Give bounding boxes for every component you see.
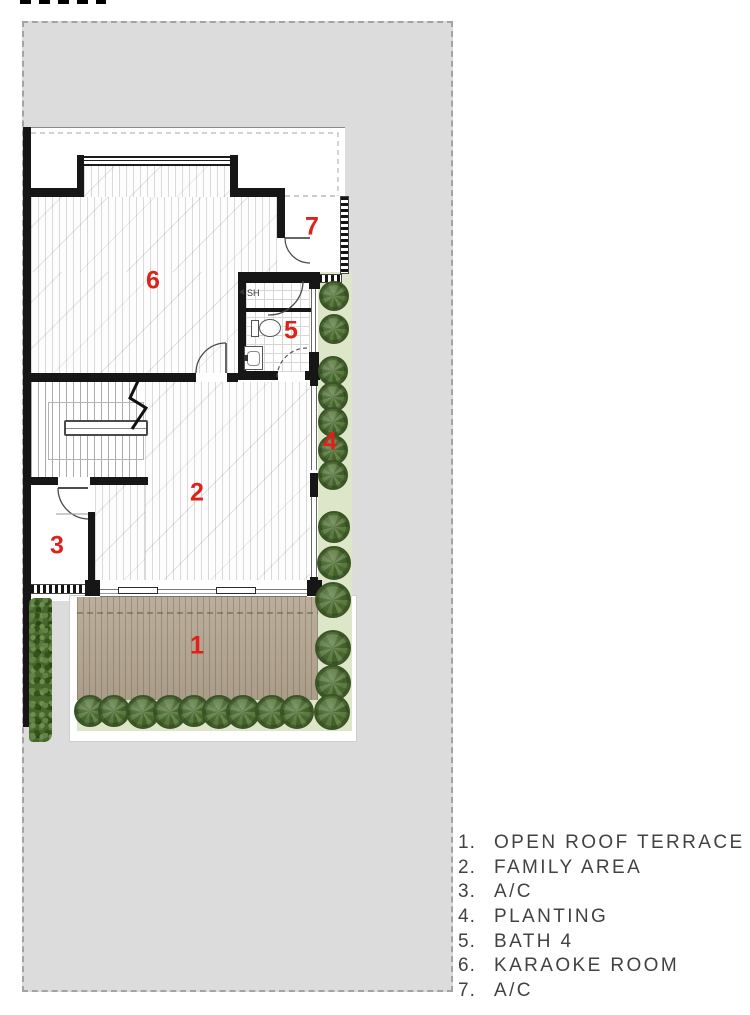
legend-item: 5.BATH 4	[458, 929, 738, 954]
wall-bath-top	[238, 272, 315, 283]
wall-stairs-bottom-right	[90, 477, 148, 485]
legend-item: 3.A/C	[458, 880, 738, 905]
legend-item-number: 2.	[458, 857, 494, 879]
wall-karaoke-top-left	[24, 188, 80, 197]
tree-icon	[318, 460, 348, 490]
louver-ac3-bottom	[30, 584, 88, 594]
legend: 1.OPEN ROOF TERRACE2.FAMILY AREA3.A/C4.P…	[458, 831, 738, 1003]
legend-item-number: 6.	[458, 955, 494, 977]
floor-plan-page: SH 1234567 1.OPEN ROOF TERRACE2.FAMILY A…	[0, 0, 750, 1015]
tree-icon	[314, 694, 350, 730]
wall-jog-left-of-window	[77, 155, 84, 197]
wall-bath-partition	[246, 308, 311, 312]
sink-faucet	[244, 355, 248, 361]
wall-stub-bottom-left	[85, 580, 100, 596]
wall-stairs-bottom-left	[23, 477, 58, 485]
wall-bath-bottom-left	[238, 371, 278, 380]
legend-item-number: 1.	[458, 832, 494, 854]
legend-item: 1.OPEN ROOF TERRACE	[458, 831, 738, 856]
hedge-left	[29, 598, 52, 742]
family-right-window-upper	[311, 386, 317, 470]
room-number-label: 2	[190, 481, 204, 506]
room-number-label: 7	[305, 215, 319, 240]
legend-item: 7.A/C	[458, 979, 738, 1004]
wall-karaoke-family-left	[23, 373, 196, 382]
stair-handrail	[64, 420, 148, 436]
sliding-door-panel-left	[118, 587, 158, 594]
tree-icon	[315, 630, 351, 666]
tree-icon	[319, 314, 349, 344]
legend-item: 4.PLANTING	[458, 905, 738, 930]
legend-item-label: FAMILY AREA	[494, 857, 642, 879]
legend-item-label: OPEN ROOF TERRACE	[494, 832, 745, 854]
room-number-label: 4	[323, 430, 337, 455]
wall-bath-right-top	[309, 272, 320, 289]
sink-basin	[247, 351, 260, 366]
karaoke-floor-upper	[31, 197, 277, 272]
legend-item-label: BATH 4	[494, 931, 574, 953]
bath-right-window	[311, 289, 316, 353]
wall-karaoke-top-right	[230, 188, 283, 197]
toilet-tank	[251, 320, 259, 337]
tree-icon	[280, 695, 314, 729]
room-number-label: 1	[190, 634, 204, 659]
legend-item: 6.KARAOKE ROOM	[458, 954, 738, 979]
site-edge-dashes	[20, 0, 106, 4]
louver-right-of-ac7	[340, 196, 349, 274]
wall-family-right-b	[310, 473, 318, 497]
toilet-bowl	[259, 319, 281, 337]
room-number-label: 3	[50, 534, 64, 559]
legend-item-number: 3.	[458, 881, 494, 903]
legend-item-label: PLANTING	[494, 906, 608, 928]
legend-item-label: A/C	[494, 980, 533, 1002]
family-area-floor-left	[95, 485, 145, 580]
family-area-floor	[145, 382, 310, 580]
tree-icon	[318, 511, 350, 543]
room-number-label: 6	[146, 269, 160, 294]
room-number-label: 5	[284, 319, 298, 344]
karaoke-floor-recess	[84, 166, 230, 197]
karaoke-floor-lower	[31, 272, 238, 373]
legend-item: 2.FAMILY AREA	[458, 856, 738, 881]
legend-item-label: A/C	[494, 881, 533, 903]
sliding-door-panel-right	[216, 587, 256, 594]
wall-ac7-left	[277, 188, 285, 238]
wall-family-right-a	[310, 373, 318, 386]
legend-item-number: 7.	[458, 980, 494, 1002]
tree-icon	[317, 546, 351, 580]
tree-icon	[319, 281, 349, 311]
wall-karaoke-family-right	[227, 373, 238, 382]
karaoke-top-window	[84, 156, 230, 166]
legend-item-number: 4.	[458, 906, 494, 928]
family-right-window-lower	[311, 497, 317, 577]
tree-icon	[315, 582, 351, 618]
legend-item-number: 5.	[458, 931, 494, 953]
legend-item-label: KARAOKE ROOM	[494, 955, 679, 977]
